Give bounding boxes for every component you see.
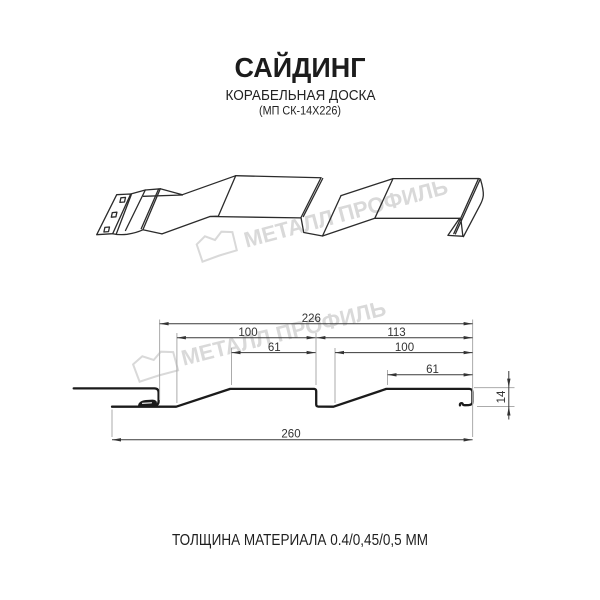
svg-text:61: 61 <box>268 342 281 354</box>
svg-text:МЕТАЛЛ ПРОФИЛЬ: МЕТАЛЛ ПРОФИЛЬ <box>241 174 450 253</box>
svg-text:МЕТАЛЛ ПРОФИЛЬ: МЕТАЛЛ ПРОФИЛЬ <box>179 295 389 370</box>
svg-text:14: 14 <box>496 390 508 403</box>
svg-text:226: 226 <box>302 313 321 325</box>
svg-text:САЙДИНГ: САЙДИНГ <box>235 51 366 83</box>
svg-text:100: 100 <box>238 327 257 339</box>
svg-text:(МП СК-14Х226): (МП СК-14Х226) <box>259 106 341 118</box>
svg-text:КОРАБЕЛЬНАЯ ДОСКА: КОРАБЕЛЬНАЯ ДОСКА <box>226 87 376 104</box>
svg-text:ТОЛЩИНА МАТЕРИАЛА 0.4/0,45/0,5: ТОЛЩИНА МАТЕРИАЛА 0.4/0,45/0,5 ММ <box>172 532 428 549</box>
svg-text:100: 100 <box>395 342 414 354</box>
svg-text:260: 260 <box>281 429 300 441</box>
svg-text:113: 113 <box>387 327 405 339</box>
svg-text:61: 61 <box>426 364 439 376</box>
